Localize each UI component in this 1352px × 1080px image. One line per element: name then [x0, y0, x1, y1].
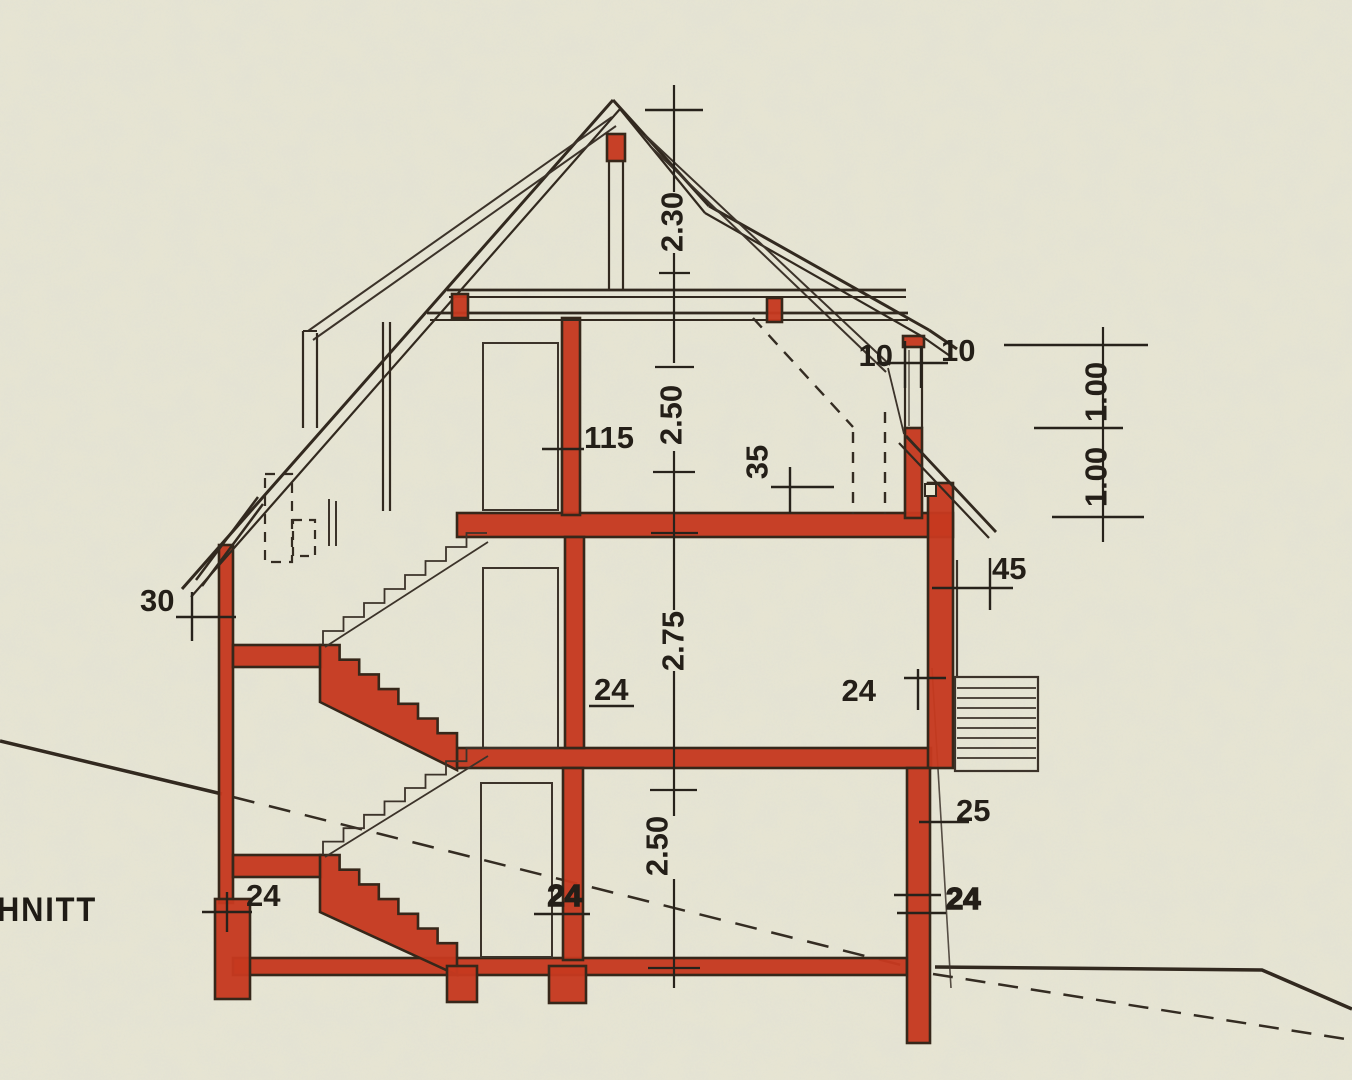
dim-roof-edge: 35	[740, 445, 775, 479]
blueprint-page: 2.30 2.50 2.75 2.50 30 24 115 35	[0, 0, 1352, 1080]
attic-knee-wall	[905, 428, 922, 518]
center-wall-attic	[562, 318, 580, 515]
section-title: HNITT	[0, 891, 97, 929]
dim-ground-right: 24	[946, 881, 981, 916]
dim-right-lower: 25	[956, 793, 990, 828]
center-wall-footing	[549, 966, 586, 1003]
section-drawing: 2.30 2.50 2.75 2.50 30 24 115 35	[0, 0, 1352, 1080]
paper-background	[0, 0, 1352, 1080]
dim-annex-parapet: 45	[992, 551, 1026, 586]
dim-knee-right: 10	[941, 333, 975, 368]
dim-attic-partition: 115	[584, 420, 634, 455]
purlin-block-right	[767, 298, 782, 322]
first-floor-slab	[457, 748, 931, 768]
dim-ground-floor-height: 2.50	[640, 816, 675, 876]
ridge-post-block	[607, 134, 625, 161]
right-exterior-wall-lower	[907, 768, 930, 1043]
left-wall-footing	[215, 899, 250, 999]
purlin-block-left	[452, 294, 468, 318]
dim-knee-left: 10	[859, 338, 893, 373]
dim-roof-height: 2.30	[655, 192, 690, 252]
dim-first-center: 24	[594, 672, 629, 707]
dim-right-lower-height: 1.00	[1079, 447, 1114, 507]
dim-attic-height: 2.50	[654, 385, 689, 445]
dim-first-right: 24	[842, 673, 877, 708]
dim-first-floor-height: 2.75	[656, 611, 691, 671]
stair-footing	[447, 966, 477, 1002]
center-wall-first-floor	[565, 537, 584, 748]
center-wall-ground-floor	[563, 768, 583, 960]
attic-floor-slab	[457, 513, 953, 537]
dim-landing: 24	[246, 878, 281, 913]
purlin-seat-notch	[925, 484, 936, 496]
stair-landing-upper	[233, 645, 321, 667]
right-exterior-wall-upper	[928, 483, 953, 768]
left-exterior-wall	[219, 545, 233, 903]
dim-right-upper: 1.00	[1079, 362, 1114, 422]
dim-ground-center: 24	[548, 878, 583, 913]
stair-landing-lower	[233, 855, 321, 877]
dim-left-wall: 30	[140, 583, 174, 618]
